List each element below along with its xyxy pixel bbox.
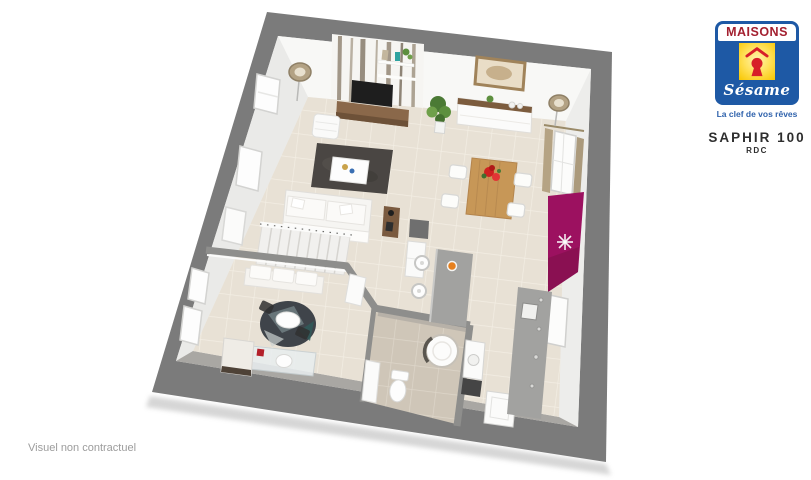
brand-script-name: Sésame (718, 80, 796, 100)
keyhole-icon (739, 43, 775, 80)
round-shower (424, 335, 458, 367)
floor-plan-rendering (0, 0, 811, 480)
brand-tagline: La clef de vos rêves (706, 109, 808, 119)
window (188, 268, 209, 304)
armchair (312, 114, 341, 140)
bar-counter (430, 249, 473, 327)
plan-title: SAPHIR 100 (706, 130, 808, 145)
entry-door (222, 207, 246, 245)
brand-name: MAISONS (718, 24, 796, 41)
side-table (382, 206, 400, 238)
pillar (409, 219, 429, 239)
teal-vase (395, 52, 400, 61)
disclaimer-text: Visuel non contractuel (28, 442, 136, 454)
plate (448, 262, 457, 271)
brand-logo-box: MAISONS Sésame (715, 21, 799, 105)
wall-picture (475, 57, 525, 90)
starburst-clock (557, 234, 573, 250)
plan-level: RDC (706, 146, 808, 155)
window (180, 306, 202, 345)
cabinet (221, 338, 254, 376)
brand-logo: MAISONS Sésame La clef de vos rêves SAPH… (706, 21, 808, 155)
coffee-table (330, 157, 369, 184)
window (236, 146, 262, 191)
sink (521, 303, 538, 320)
